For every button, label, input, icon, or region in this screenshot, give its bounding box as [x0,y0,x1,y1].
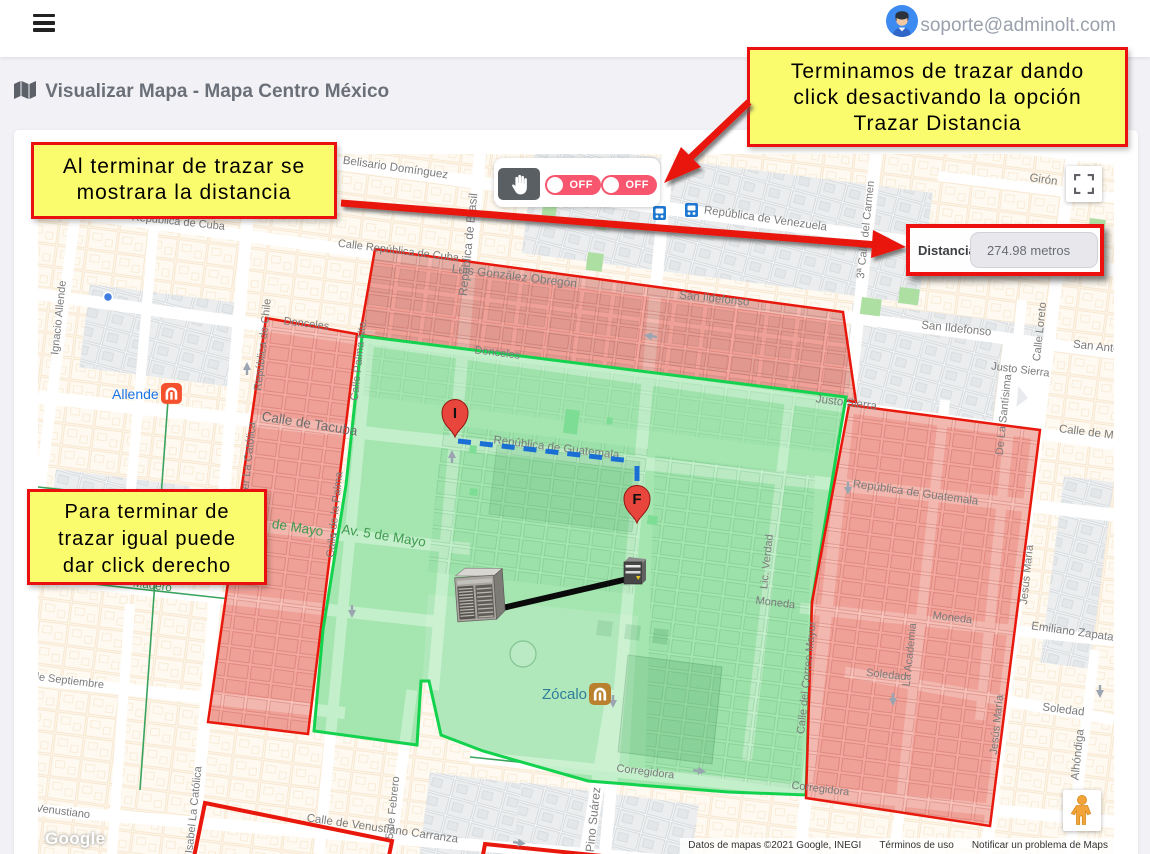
svg-text:I: I [453,405,457,422]
svg-text:Allende: Allende [112,386,159,402]
svg-text:Zócalo: Zócalo [542,686,587,703]
svg-text:F: F [632,491,641,508]
